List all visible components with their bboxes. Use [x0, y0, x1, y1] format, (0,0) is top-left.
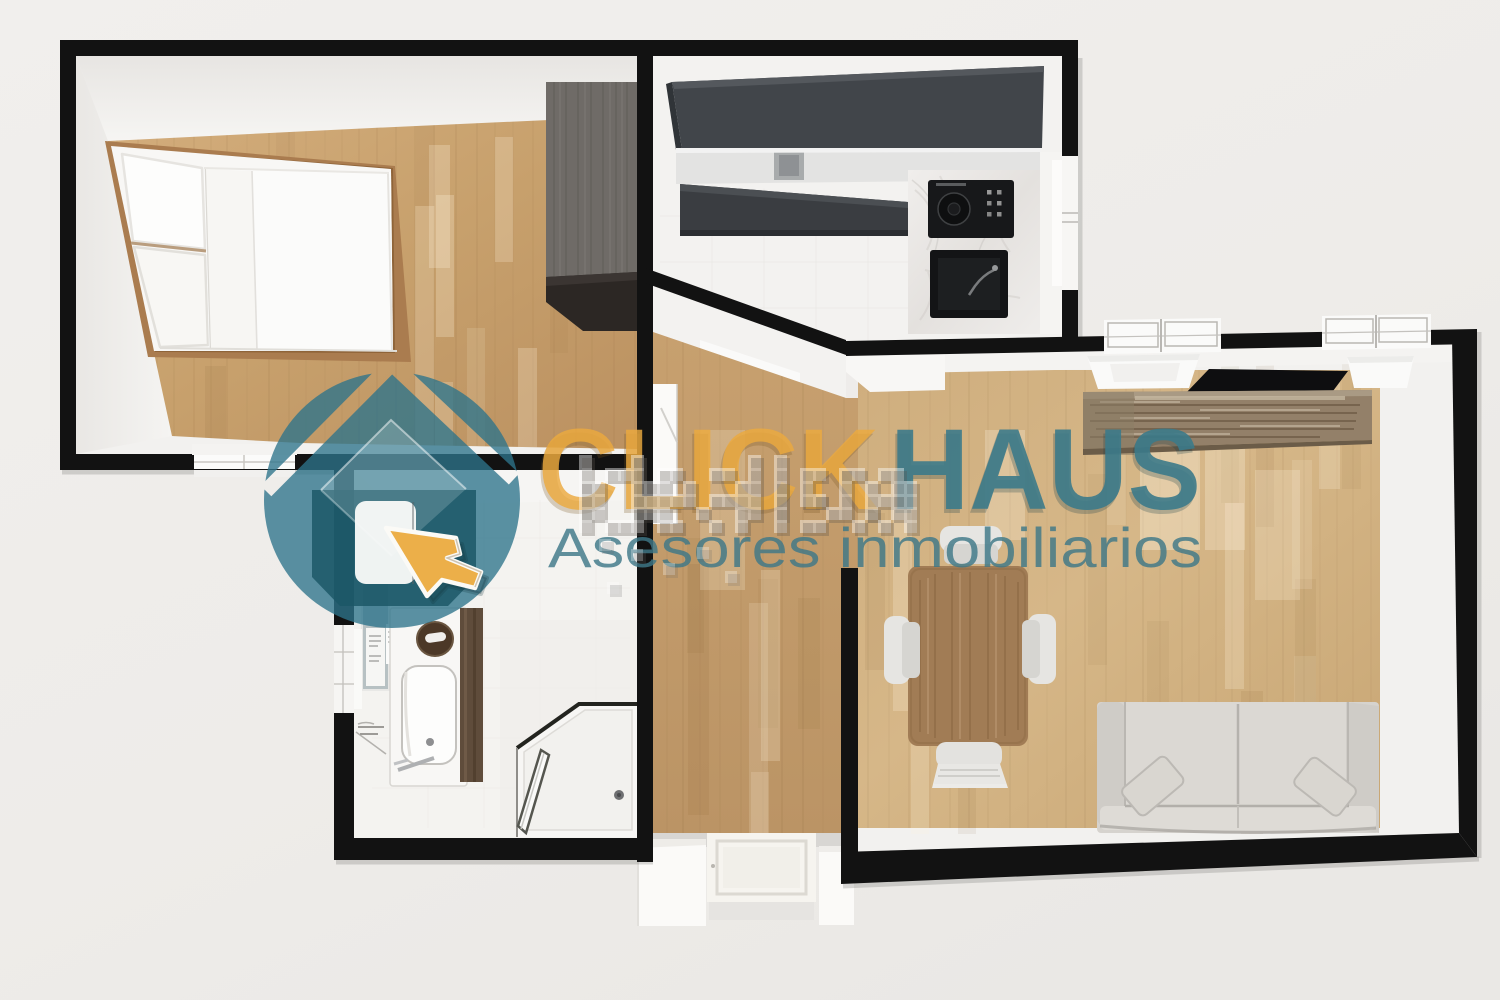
- svg-text:HAUS: HAUS: [890, 406, 1201, 534]
